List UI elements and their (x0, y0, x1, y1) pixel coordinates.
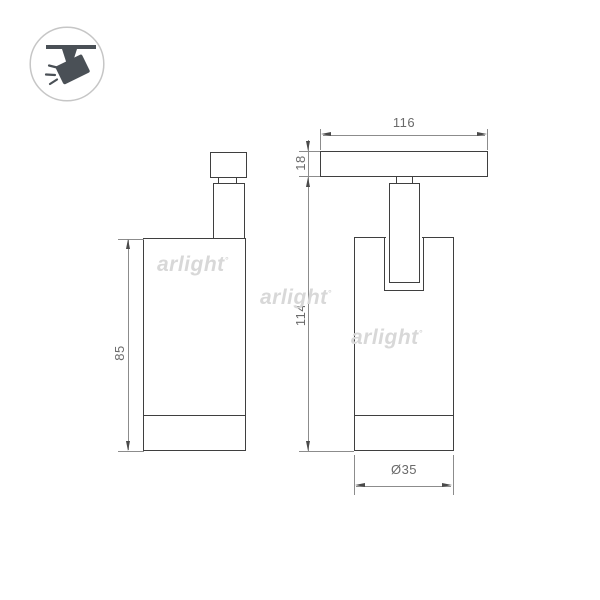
dim-track-height: 18 (294, 148, 308, 178)
watermark-text: arlight (351, 326, 419, 349)
front-swivel-stem (213, 183, 245, 239)
dimension-drawing: 85 116 18 114 Ø35 arlight° arlight° arli… (0, 0, 600, 600)
dim-85-ext-bottom (118, 451, 144, 452)
ceiling-track-spotlight-icon (29, 26, 105, 102)
dim-85-ext-top (118, 239, 144, 240)
dim-35-arrow-right (442, 483, 452, 487)
watermark-mark: ° (328, 288, 332, 298)
watermark-2: arlight° (260, 285, 332, 306)
side-slot-bottom (384, 290, 424, 291)
watermark-text: arlight (260, 286, 328, 309)
side-body-right (453, 237, 454, 451)
side-slot-right (423, 238, 424, 291)
dim-116-ext-right (487, 129, 488, 150)
dim-35-arrow-left (355, 483, 365, 487)
dim-85-line (128, 240, 129, 450)
watermark-mark: ° (225, 255, 229, 265)
dim-85-arrow-bottom (126, 441, 130, 451)
side-body-trim-line (354, 415, 454, 416)
watermark-mark: ° (419, 328, 423, 338)
dim-116-arrow-left (321, 132, 331, 136)
dim-116-line (323, 135, 485, 136)
dim-35-ext-right (453, 455, 454, 495)
side-slot-left (384, 238, 385, 291)
dim-body-diameter: Ø35 (383, 463, 425, 477)
side-body-top-left (354, 237, 386, 238)
side-body-bottom (354, 450, 454, 451)
dim-85-arrow-top (126, 239, 130, 249)
side-body-top-right (422, 237, 454, 238)
dim-18-114-arrow-middle (306, 177, 310, 187)
front-body-trim-line (143, 415, 246, 416)
front-track-adapter (210, 152, 247, 178)
side-swivel-stem (389, 183, 420, 283)
watermark-3: arlight° (351, 325, 423, 346)
dim-track-length: 116 (384, 116, 424, 130)
watermark-1: arlight° (157, 252, 229, 273)
ceiling-line (46, 45, 96, 49)
dim-body-height: 85 (113, 338, 127, 368)
dim-35-line (356, 486, 451, 487)
dim-116-arrow-right (477, 132, 487, 136)
watermark-text: arlight (157, 253, 225, 276)
dim-35-ext-left (354, 455, 355, 495)
dim-114-arrow-bottom (306, 441, 310, 451)
side-track-bar (320, 151, 488, 177)
